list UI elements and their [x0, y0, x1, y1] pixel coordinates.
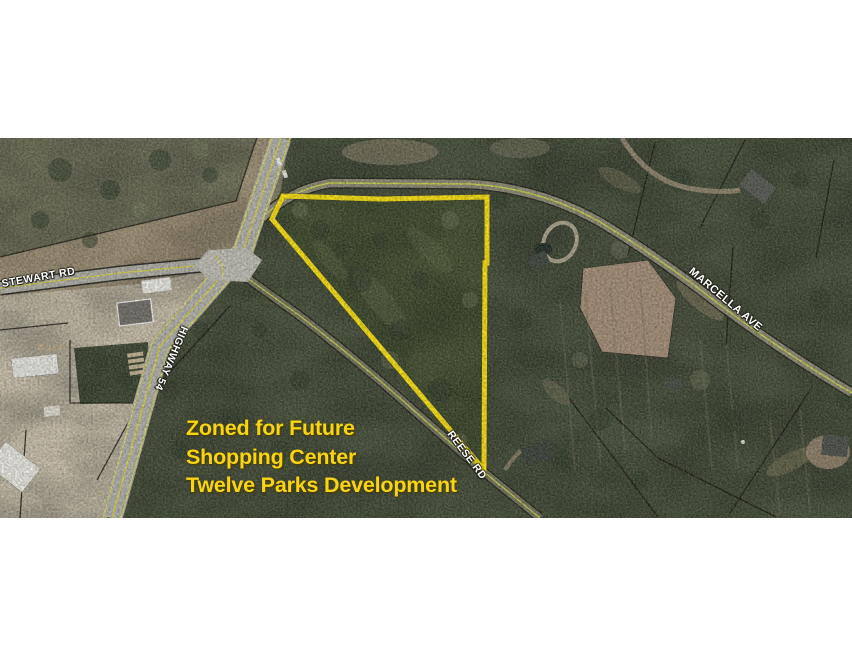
page-background: STEWART RD HIGHWAY 54 MARCELLA AVE REESE… — [0, 0, 852, 658]
caption-line-1: Zoned for Future — [186, 414, 457, 443]
zoning-caption: Zoned for Future Shopping Center Twelve … — [186, 414, 457, 500]
caption-line-2: Shopping Center — [186, 443, 457, 472]
aerial-photo: STEWART RD HIGHWAY 54 MARCELLA AVE REESE… — [0, 138, 852, 518]
caption-line-3: Twelve Parks Development — [186, 471, 457, 500]
